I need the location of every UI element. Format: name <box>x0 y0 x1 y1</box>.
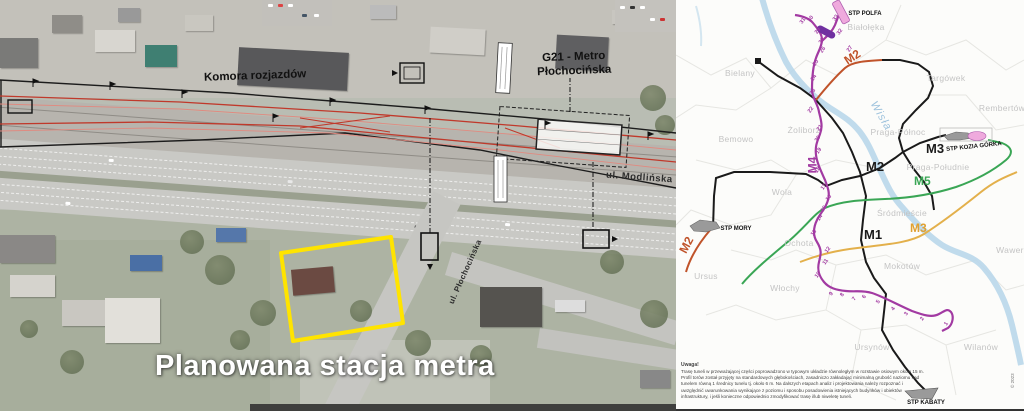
metro-line-targowek-loop <box>882 60 933 152</box>
station-box-g21 <box>496 106 629 167</box>
note-lines: Trasę tuneli w przeważającej części popr… <box>681 369 911 400</box>
shaft-arrow-south <box>427 264 433 270</box>
district-label: Praga-Północ <box>870 127 925 137</box>
shaft-arrow-east <box>612 236 618 242</box>
district-label: Żoliborz <box>788 125 821 135</box>
planned-station-site-outline <box>281 237 403 341</box>
district-label: Białołęka <box>847 22 884 32</box>
vent-box-north <box>392 63 424 83</box>
district-label: Rembertów <box>979 103 1024 113</box>
district-label: Bielany <box>725 68 755 78</box>
metro-line-label: M5 <box>914 174 931 188</box>
map-copyright: © 2023 <box>1010 373 1015 388</box>
depot-label: STP MORY <box>720 226 751 232</box>
note-line: tunelem równą 1 średnicy tunelu tj. okoł… <box>681 381 911 387</box>
district-label: Ochota <box>784 238 813 248</box>
district-label: Włochy <box>770 283 800 293</box>
district-label: Targówek <box>927 73 966 83</box>
note-line: uwzględnić uwarunkowania wynikające z po… <box>681 388 911 394</box>
m1-north-terminus <box>755 58 761 64</box>
district-label: Bemowo <box>719 134 754 144</box>
depot-stp-kozia-gorka <box>940 128 992 141</box>
metro-line-label: M2 <box>866 159 884 174</box>
district-label: Ursus <box>694 271 718 281</box>
depot-label: STP POLFA <box>848 11 881 17</box>
river-wisla <box>762 0 1021 365</box>
metro-line-label: M3 <box>926 141 944 156</box>
district-label: Praga-Południe <box>907 162 970 172</box>
note-block: Uwaga! Trasę tuneli w przeważającej częś… <box>681 362 911 400</box>
screenshot-root: Komora rozjazdów G21 - Metro Płochocińsk… <box>0 0 1024 411</box>
shaft-box-south <box>421 233 438 260</box>
district-label: Wola <box>772 187 792 197</box>
g21-station-label: G21 - Metro Płochocińska <box>522 48 627 80</box>
note-title: Uwaga! <box>681 362 911 368</box>
district-label: Ursynów <box>854 342 889 352</box>
district-label: Mokotów <box>884 261 920 271</box>
metro-map-panel: BielanyBiałołękaTargówekRembertówBemowoŻ… <box>676 0 1024 411</box>
metro-line-m1 <box>759 62 926 391</box>
district-label: Wilanów <box>964 342 998 352</box>
depot-label: STP KABATY <box>907 400 945 406</box>
district-label: Śródmieście <box>877 208 927 218</box>
depot-stp-mory <box>690 220 720 232</box>
note-line: infrastruktury, i jeśli konieczne odpowi… <box>681 394 911 400</box>
vent-box-west <box>8 100 32 113</box>
metro-line-label: M1 <box>864 227 882 242</box>
chainage-label-north <box>496 43 513 94</box>
district-label: Wawer <box>996 245 1024 255</box>
chainage-label-south <box>494 156 507 202</box>
river-branch <box>696 6 701 46</box>
shaft-box-east <box>583 230 609 248</box>
metro-line-label: M3 <box>910 221 927 235</box>
caption-planned-station: Planowana stacja metra <box>155 350 495 383</box>
aerial-photo-panel: Komora rozjazdów G21 - Metro Płochocińsk… <box>0 0 676 411</box>
